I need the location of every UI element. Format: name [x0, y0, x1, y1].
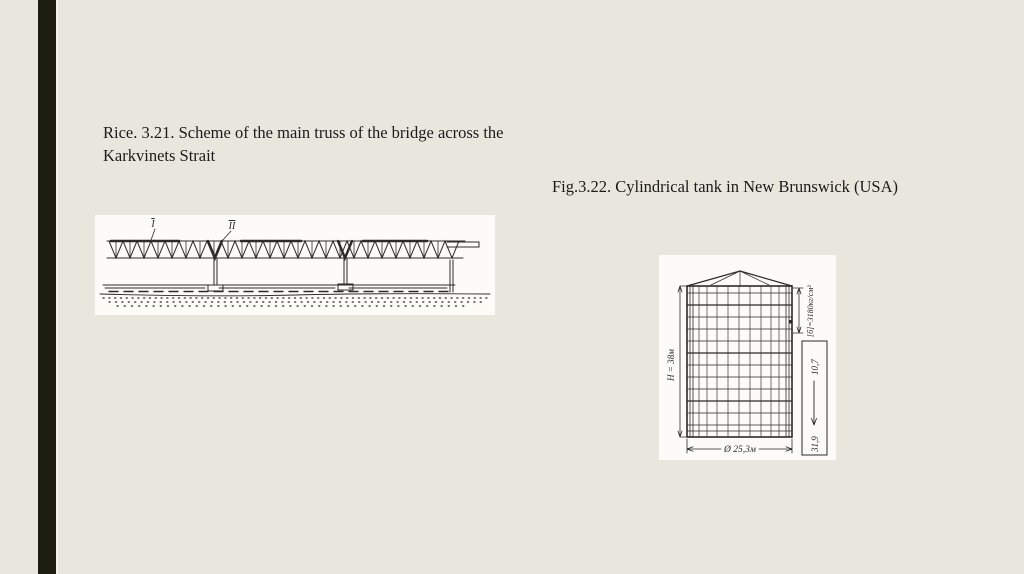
bridge-end-post: [450, 260, 453, 292]
tank-roof-facets: [687, 271, 792, 286]
tank-roof-outline: [687, 271, 792, 286]
tank-horizontal-grid: [687, 293, 792, 431]
figure-bridge: I II: [95, 215, 495, 315]
caption-bridge-line2: Karkvinets Strait: [103, 144, 503, 167]
cylindrical-tank-drawing: H = 38м Ø 25,3м [б]=3180кг/см² 10,7 31,9: [659, 255, 836, 460]
tank-value-top-label: 10,7: [810, 359, 820, 375]
tank-body: [687, 286, 792, 437]
tank-diameter-dim-label: Ø 25,3м: [723, 445, 756, 455]
caption-tank: Fig.3.22. Cylindrical tank in New Brunsw…: [552, 175, 898, 198]
tank-vertical-grid: [699, 286, 779, 437]
water-lines: [103, 285, 455, 288]
tank-height-dim-label: H = 38м: [666, 349, 676, 382]
bridge-pier-2: [344, 258, 347, 284]
tank-stress-dim-line: [793, 288, 803, 333]
caption-bridge-line1: Rice. 3.21. Scheme of the main truss of …: [103, 121, 503, 144]
tank-stress-label: [б]=3180кг/см²: [806, 285, 815, 337]
bridge-truss-drawing: I II: [95, 215, 495, 315]
tank-edge-lines: [690, 286, 789, 437]
truss-label-2: II: [228, 221, 236, 232]
tank-height-dim-line: [678, 286, 686, 437]
tank-wall-marker: [789, 320, 793, 324]
tank-value-bottom-label: 31,9: [810, 436, 820, 453]
truss-label-leaders: [151, 229, 231, 241]
bridge-pier-1: [214, 258, 217, 285]
figure-tank: H = 38м Ø 25,3м [б]=3180кг/см² 10,7 31,9: [659, 255, 836, 460]
left-accent-bar: [38, 0, 58, 574]
shoreline: [100, 294, 490, 296]
caption-bridge: Rice. 3.21. Scheme of the main truss of …: [103, 121, 503, 167]
truss-label-1: I: [150, 219, 155, 230]
tank-values-arrow: [812, 381, 817, 425]
tank-course-joints: [687, 305, 792, 401]
bridge-overhang-beam: [447, 242, 479, 247]
slide-root: { "colors": { "background": "#e9e6dd", "…: [0, 0, 1024, 574]
